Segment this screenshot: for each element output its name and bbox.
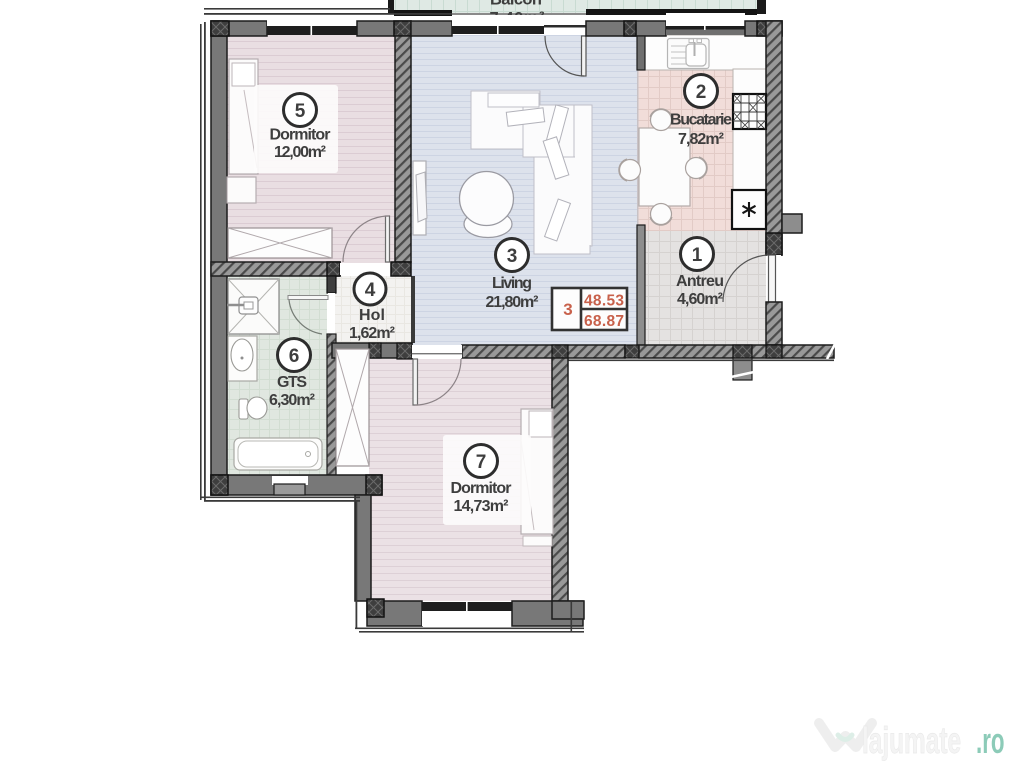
svg-text:4,60m²: 4,60m² xyxy=(677,291,723,308)
svg-text:68.87: 68.87 xyxy=(584,313,624,330)
svg-text:14,73m²: 14,73m² xyxy=(454,498,509,515)
svg-text:Living: Living xyxy=(492,275,532,292)
svg-text:Bucatarie: Bucatarie xyxy=(670,112,732,129)
svg-text:4: 4 xyxy=(365,280,376,301)
svg-text:lajumate: lajumate xyxy=(862,720,961,761)
svg-text:GTS: GTS xyxy=(277,374,307,391)
svg-text:Balcon: Balcon xyxy=(490,0,542,9)
svg-text:Antreu: Antreu xyxy=(676,273,724,290)
svg-text:.ro: .ro xyxy=(976,722,1005,762)
svg-text:3: 3 xyxy=(563,300,572,319)
svg-text:7: 7 xyxy=(476,452,487,473)
svg-text:1,62m²: 1,62m² xyxy=(349,325,395,342)
svg-text:48.53: 48.53 xyxy=(584,293,624,310)
svg-text:Hol: Hol xyxy=(359,307,385,324)
svg-text:3: 3 xyxy=(507,246,518,267)
svg-text:1: 1 xyxy=(692,245,703,266)
svg-text:12,00m²: 12,00m² xyxy=(274,144,326,161)
svg-text:Dormitor: Dormitor xyxy=(451,480,512,497)
svg-text:6,30m²: 6,30m² xyxy=(269,392,315,409)
svg-text:2: 2 xyxy=(696,82,707,103)
svg-text:21,80m²: 21,80m² xyxy=(486,294,539,311)
svg-text:Dormitor: Dormitor xyxy=(270,127,331,144)
svg-text:7,82m²: 7,82m² xyxy=(678,131,724,148)
svg-text:6: 6 xyxy=(289,346,300,367)
svg-text:5: 5 xyxy=(295,101,306,122)
